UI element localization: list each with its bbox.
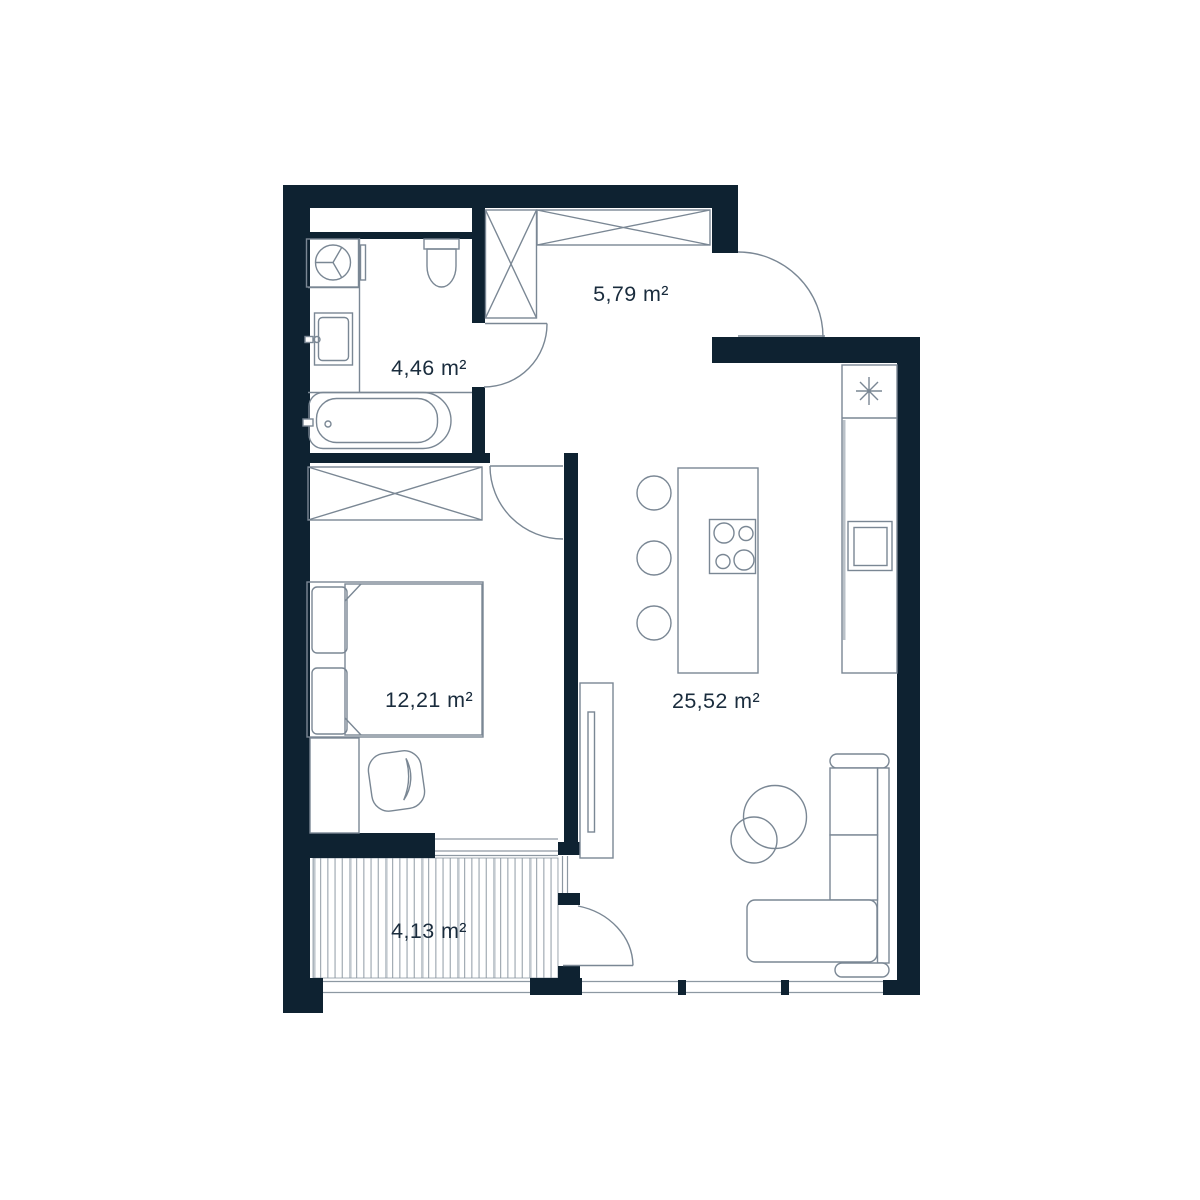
- wall-balcony-divider-b: [558, 893, 580, 905]
- toilet-tank: [424, 239, 459, 249]
- bathroom-door-arc: [484, 324, 547, 388]
- wall-bedroom-living: [564, 453, 578, 842]
- bedroom-wardrobe: [308, 467, 482, 520]
- bathroom-shelf: [361, 245, 366, 280]
- wall-balcony-divider-a: [558, 842, 580, 855]
- bedroom-door-arc: [490, 466, 563, 539]
- kitchen-furniture: [637, 365, 897, 673]
- kitchen-island-icon: [678, 468, 758, 673]
- balcony-door: [563, 906, 633, 966]
- armchair-icon: [366, 749, 427, 814]
- label-bathroom-area: 4,46 m²: [391, 356, 467, 380]
- wall-entry-jamb: [712, 208, 738, 253]
- wardrobe-cross-icon: [308, 467, 482, 520]
- light-asterisk-icon: [856, 377, 882, 405]
- armchair-back-curve: [398, 758, 414, 800]
- wall-bottom-band-block: [530, 978, 582, 995]
- burner-large-2: [734, 550, 754, 570]
- tv-screen: [588, 712, 595, 832]
- burner-small-2: [716, 555, 730, 569]
- window-mullion-2: [781, 980, 789, 995]
- floor-plan: 5,79 m² 4,46 m² 12,21 m² 25,52 m² 4,13 m…: [0, 0, 1200, 1200]
- sofa-armrest-top: [830, 754, 889, 768]
- bathtub-drain: [325, 421, 331, 427]
- bed-mattress: [345, 584, 482, 735]
- burner-large-1: [714, 523, 734, 543]
- toilet-icon: [424, 239, 459, 287]
- wall-balcony-divider-c: [558, 966, 580, 980]
- wardrobe-horizontal: [537, 210, 710, 245]
- balcony-deck: [313, 858, 558, 978]
- entrance-door: [738, 252, 825, 337]
- label-living-area: 25,52 m²: [672, 689, 760, 713]
- sink-icon: [305, 313, 353, 365]
- bathtub-outer: [309, 393, 451, 449]
- wall-bathroom-bedroom: [283, 453, 490, 463]
- stool-icon-1: [637, 476, 671, 510]
- sofa-seat-2: [830, 835, 878, 900]
- bathtub-icon: [303, 393, 451, 449]
- label-balcony-area: 4,13 m²: [391, 919, 467, 943]
- bathroom-door: [484, 324, 547, 388]
- window-mullion-1: [678, 980, 686, 995]
- wall-bedroom-balcony: [283, 833, 435, 858]
- bed-icon: [307, 582, 483, 737]
- bedroom-door: [490, 466, 563, 539]
- counter-outline: [842, 365, 897, 673]
- kitchen-counter-right: [842, 365, 897, 673]
- bed-pillow-1: [312, 587, 347, 653]
- balcony-door-arc: [578, 906, 633, 966]
- sofa-icon: [747, 754, 889, 977]
- sink-basin: [319, 318, 349, 361]
- wall-corner-bottom-left: [283, 978, 323, 1013]
- armchair-body: [366, 749, 427, 814]
- toilet-bowl: [427, 249, 456, 287]
- bathtub-tap: [303, 419, 313, 426]
- wall-bathroom-shaft: [308, 232, 472, 239]
- living-room-furniture: [580, 683, 889, 977]
- washing-machine-icon: [307, 239, 366, 287]
- sofa-armrest-bottom: [835, 963, 889, 977]
- sofa-backrest: [878, 768, 890, 963]
- bedroom-furniture: [307, 467, 483, 833]
- wall-top-right: [712, 337, 920, 363]
- burner-small-1: [739, 527, 753, 541]
- stool-icon-2: [637, 541, 671, 575]
- wall-right: [897, 337, 920, 995]
- sink-tap: [305, 337, 313, 343]
- tv-icon: [580, 683, 613, 858]
- wall-bathroom-right-upper: [472, 208, 485, 323]
- bed-pillow-2: [312, 668, 347, 734]
- wardrobe-vertical: [486, 210, 537, 318]
- bathroom-fixtures: [303, 238, 472, 449]
- entrance-door-arc: [738, 252, 823, 337]
- wardrobe-cross-icon: [486, 210, 537, 318]
- wall-bathroom-right-lower: [472, 387, 485, 453]
- label-bedroom-area: 12,21 m²: [385, 688, 473, 712]
- stool-icon-3: [637, 606, 671, 640]
- label-hallway-area: 5,79 m²: [593, 282, 669, 306]
- bathtub-inner: [317, 399, 438, 443]
- sofa-chaise: [747, 900, 877, 962]
- floor-plan-canvas: 5,79 m² 4,46 m² 12,21 m² 25,52 m² 4,13 m…: [0, 0, 1200, 1200]
- wall-corner-bottom-right: [883, 980, 920, 995]
- tv-cabinet: [580, 683, 613, 858]
- wardrobe-cross-icon: [537, 210, 710, 245]
- wall-left: [283, 185, 310, 1013]
- wall-top: [283, 185, 738, 208]
- sofa-seat-1: [830, 768, 878, 835]
- bedroom-dresser: [310, 738, 359, 833]
